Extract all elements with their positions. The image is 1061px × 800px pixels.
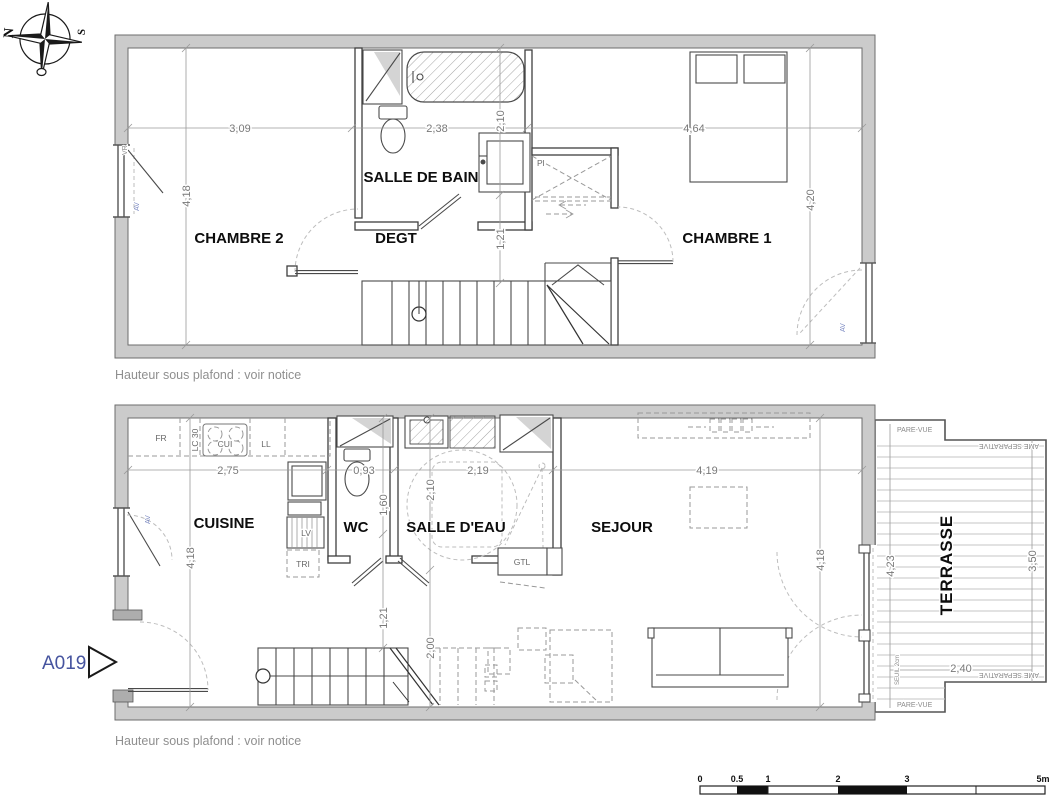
- terrace-separative-top: AME SEPARATIVE: [979, 442, 1039, 449]
- dim-v-sde: 2,10: [425, 479, 437, 500]
- room-label-wc: WC: [344, 519, 369, 536]
- floor-plan-sheet: N S VR AV AV: [0, 0, 1061, 800]
- entry-marker: A019: [42, 647, 116, 677]
- window-label-av-right: AV: [840, 323, 847, 332]
- dim-v-degt: 1,21: [495, 228, 507, 249]
- dim-h-chambre1: 4,64: [683, 123, 704, 135]
- wall-wc-left: [328, 418, 336, 560]
- label-fridge: FR: [155, 433, 166, 443]
- dim-h-chambre2: 3,09: [229, 123, 250, 135]
- label-tri: TRI: [296, 559, 310, 569]
- dim-h-sdb: 2,38: [426, 123, 447, 135]
- scale-tick-5m: 5m: [1036, 774, 1049, 784]
- dim-v-left-upper: 4,18: [181, 185, 193, 206]
- upper-ceiling-note: Hauteur sous plafond : voir notice: [115, 368, 301, 382]
- room-label-salle-de-bain: SALLE DE BAIN: [363, 169, 478, 186]
- room-label-cuisine: CUISINE: [194, 515, 255, 532]
- bed: [690, 52, 787, 182]
- room-label-sejour: SEJOUR: [591, 519, 653, 536]
- scale-tick-05: 0.5: [731, 774, 744, 784]
- sofa: [648, 628, 792, 687]
- lower-ceiling-note: Hauteur sous plafond : voir notice: [115, 734, 301, 748]
- wall-closet-top: [532, 148, 618, 155]
- window-label-av-left: AV: [134, 202, 141, 211]
- upper-floor-plan: VR AV AV: [112, 35, 876, 382]
- dim-v-stair2: 2,00: [425, 637, 437, 658]
- entry-arrow-icon: [89, 647, 116, 677]
- scale-tick-1: 1: [765, 774, 770, 784]
- dim-h-wc: 0,93: [353, 465, 374, 477]
- wall-sdb-left: [355, 48, 362, 218]
- window-label-av-kitchen: AV: [145, 515, 152, 524]
- label-ll: LL: [261, 439, 271, 449]
- dim-h-cuisine: 2,75: [217, 465, 238, 477]
- compass-south-label: S: [76, 28, 88, 35]
- dim-v-right-lower: 4,18: [815, 549, 827, 570]
- wall-sdb-bottom: [355, 222, 418, 230]
- scale-tick-2: 2: [835, 774, 840, 784]
- wall-stair-right: [611, 258, 618, 345]
- dim-v-left-lower: 4,18: [185, 547, 197, 568]
- compass-rose: N S: [2, 0, 89, 79]
- terrace-pare-vue-top: PARE-VUE: [897, 427, 933, 434]
- room-label-degt: DEGT: [375, 230, 417, 247]
- scale-tick-0: 0: [697, 774, 702, 784]
- room-label-chambre2: CHAMBRE 2: [194, 230, 283, 247]
- dim-v-bath: 2,10: [495, 110, 507, 131]
- room-label-chambre1: CHAMBRE 1: [682, 230, 771, 247]
- terrace-pare-vue-bottom: PARE-VUE: [897, 702, 933, 709]
- wall-closet-right: [611, 148, 618, 208]
- label-lv: LV: [301, 528, 311, 538]
- dim-v-wc: 1,60: [378, 494, 390, 515]
- room-label-terrasse: TERRASSE: [937, 515, 956, 616]
- compass-ring: [37, 69, 46, 76]
- toilet-upper: [379, 106, 407, 153]
- dim-h-sde: 2,19: [467, 465, 488, 477]
- terrace-separative-bottom: AME SEPARATIVE: [979, 671, 1039, 678]
- bathtub: [407, 52, 524, 102]
- dim-v-right-upper: 4,20: [805, 189, 817, 210]
- dim-v-stair: 1,21: [378, 607, 390, 628]
- closet-label: Pl: [537, 158, 545, 168]
- wall-wc-bottom: [328, 556, 350, 563]
- compass-north-label: N: [2, 27, 18, 38]
- terrace-dim-right: 3,50: [1027, 550, 1039, 571]
- window-label-vr: VR: [122, 145, 129, 155]
- scale-tick-3: 3: [904, 774, 909, 784]
- label-hob: CUI: [218, 439, 233, 449]
- shower-upper: [363, 50, 402, 104]
- dim-h-sejour: 4,19: [696, 465, 717, 477]
- label-gtl: GTL: [514, 557, 531, 567]
- washbasin-upper: [479, 133, 530, 192]
- scale-bar: 0 0.5 1 2 3 5m: [697, 774, 1049, 794]
- entry-ref-label: A019: [42, 653, 86, 674]
- wall-sde-bottom: [472, 556, 500, 563]
- terrace-dim-width: 2,40: [950, 663, 971, 675]
- floor-plan-drawing: N S VR AV AV: [0, 0, 1061, 800]
- terrace-dim-left: 4,23: [885, 555, 897, 576]
- label-lc30: LC 30: [190, 428, 200, 451]
- room-label-salle-eau: SALLE D'EAU: [406, 519, 505, 536]
- lower-floor-plan: PARE-VUE PARE-VUE AME SEPARATIVE AME SEP…: [42, 405, 1046, 748]
- seuil-label: SEUIL 2cm: [895, 655, 901, 685]
